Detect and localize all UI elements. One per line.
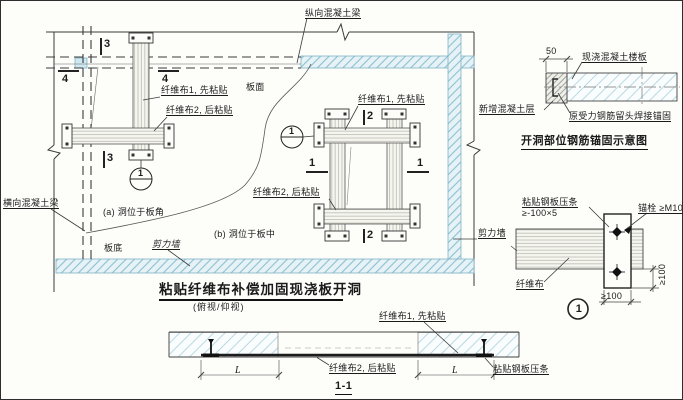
anchor-detail-drawing [539,56,680,113]
section-mark-2-bottom: 2 [367,229,373,242]
label-fiber2-b: 纤维布2, 后粘贴 [253,187,320,198]
label-rebar-anchor: 原受力钢筋留头焊接锚固 [569,111,671,122]
label-new-layer: 新增混凝土层 [479,104,535,115]
label-shear-wall-bottom: 剪力墙 [152,239,180,250]
label-fiber2-a: 纤维布2, 后粘贴 [166,105,233,116]
section-mark-1-right: 1 [417,157,423,170]
plan-title: 粘贴纤维布补偿加固现浇板开洞 [159,282,343,301]
section-mark-2-top: 2 [367,110,373,123]
dim-L-right: L [452,365,458,377]
dim-50-text: 50 [546,46,557,56]
drawing-sheet: 纵向混凝土梁 横向混凝土梁 板面 纤维布1, 先粘贴 纤维布2, 后粘贴 (a)… [0,0,683,400]
section-title: 1-1 [335,380,352,395]
bubble-number-1: 1 [575,303,583,316]
section-mark-3-bottom: 3 [107,152,113,165]
label-section-plate: 粘贴钢板压条 [493,364,549,375]
label-plate-batten: 粘贴钢板压条 [522,197,578,208]
label-fiber-cloth: 纤维布 [516,279,544,290]
steel-plate-batten [604,214,631,288]
section-mark-3-top: 3 [104,38,110,51]
cad-linework [1,1,683,400]
beam-intersection-mark [75,58,87,68]
caption-a: (a) 洞位于板角 [103,207,164,217]
label-plate-size: ≥-100×5 [522,208,557,218]
strip-end-clamp [164,124,174,148]
label-slab-bottom: 板底 [104,243,123,253]
strip-end-clamp [129,33,153,43]
label-beam-longitudinal: 纵向混凝土梁 [305,8,361,19]
label-anchor-bolt: 锚栓 ≥M10 [638,203,683,214]
label-section-fiber1: 纤维布1, 先粘贴 [379,311,446,322]
anchor-detail-title: 开洞部位钢筋锚固示意图 [521,135,648,150]
dim-50 [539,56,573,72]
plan-subtitle: (俯视/仰视) [193,302,245,312]
section-mark-4-right: 4 [162,73,168,86]
label-section-fiber2: 纤维布2, 后粘贴 [329,363,396,374]
label-cast-slab: 现浇混凝土楼板 [582,52,647,63]
section-mark-1-left: 1 [309,157,315,170]
label-fiber1-b: 纤维布1, 先粘贴 [358,94,425,105]
fiber-assembly-b [281,109,429,243]
label-shear-wall-right: 剪力墙 [478,228,506,239]
section-mark-4-left: 4 [62,73,68,86]
bubble-number-a: 1 [138,168,143,178]
new-concrete-block [546,73,567,103]
dim-100-vertical: ≥100 [657,264,667,285]
caption-b: (b) 洞位于板中 [214,229,275,239]
strip-end-clamp [129,150,153,160]
plate-detail-drawing [511,207,659,319]
label-fiber1-a: 纤维布1, 先粘贴 [161,85,228,96]
label-slab-top: 板面 [246,82,265,92]
dim-100-horizontal: ≥100 [601,291,622,301]
fiber-strip-horizontal [64,128,169,144]
bubble-number-b: 1 [289,126,294,136]
strip-end-clamp [62,124,72,148]
label-beam-transverse: 横向混凝土梁 [3,198,59,209]
dim-L-left: L [235,365,241,377]
